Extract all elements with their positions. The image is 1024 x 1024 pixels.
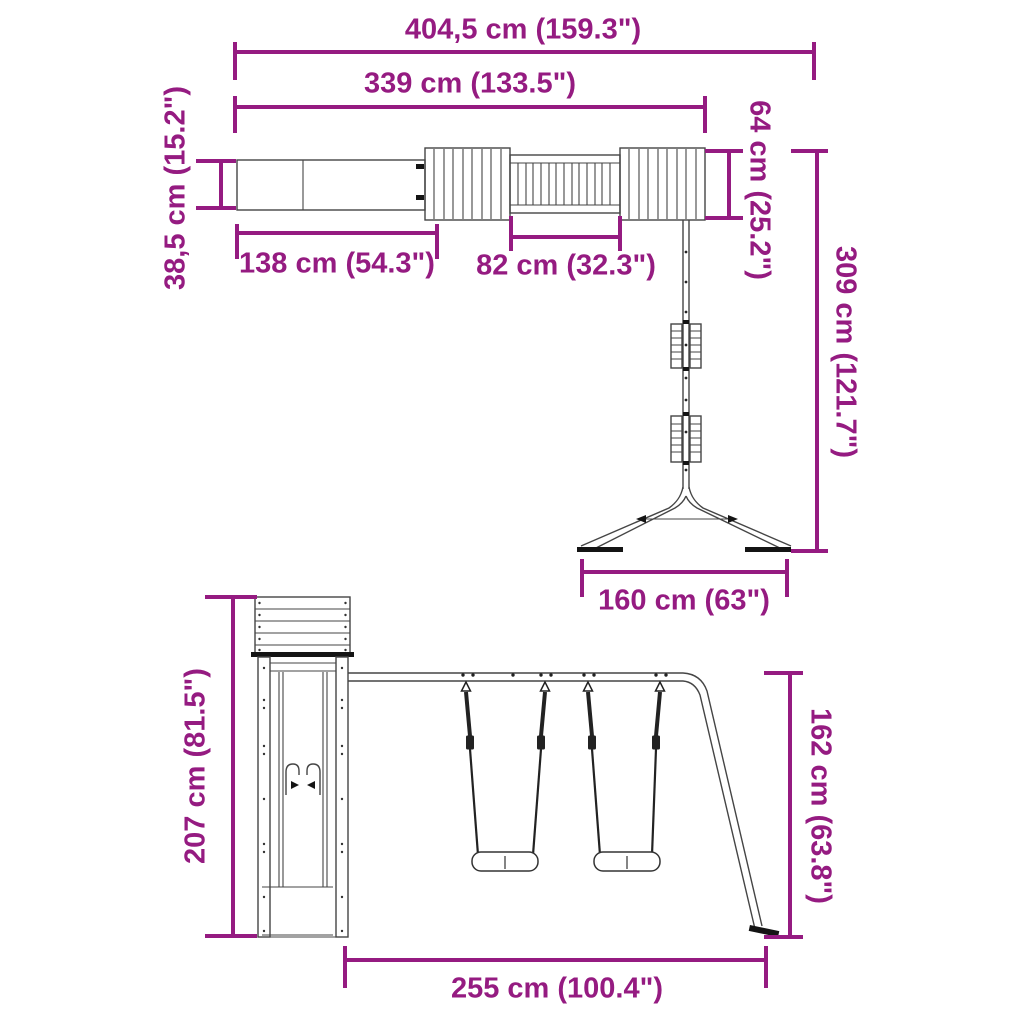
tower-body-with-slide	[258, 657, 348, 937]
support-pole	[683, 220, 689, 489]
dimension-label-base-width: 160 cm (63")	[598, 587, 770, 616]
left-beam	[237, 160, 425, 210]
swing-seat-left	[462, 682, 550, 871]
playset-line-drawing	[0, 0, 1024, 1024]
dimension-label-frame-height: 309 cm (121.7")	[831, 246, 860, 458]
a-frame-base	[577, 487, 791, 552]
tower-roof	[251, 597, 354, 657]
dimension-label-total-width: 404,5 cm (159.3")	[405, 16, 641, 45]
dimension-label-beam-span: 339 cm (133.5")	[364, 70, 576, 99]
swing-seat-right	[584, 682, 665, 871]
dimension-label-bridge-length: 82 cm (32.3")	[476, 252, 656, 281]
dimension-label-beam-thickness: 64 cm (25.2")	[745, 100, 774, 280]
swing-frame	[348, 673, 779, 937]
dimension-label-tower-height: 207 cm (81.5")	[182, 668, 211, 864]
front-view-tower-and-swings	[251, 597, 779, 937]
dimension-label-swing-frame-height: 162 cm (63.8")	[806, 708, 835, 904]
swing-hanger-straps	[671, 320, 701, 465]
top-view-beam-structure	[237, 148, 791, 552]
dimension-label-beam-depth: 38,5 cm (15.2")	[162, 86, 191, 290]
dimension-label-swing-frame-width: 255 cm (100.4")	[451, 975, 663, 1004]
dimension-diagram-canvas: 404,5 cm (159.3") 339 cm (133.5") 38,5 c…	[0, 0, 1024, 1024]
left-monkeybar-section	[425, 148, 510, 220]
top-dimension-lines	[196, 42, 828, 597]
right-monkeybar-section	[620, 148, 705, 220]
dimension-label-left-beam-length: 138 cm (54.3")	[239, 250, 435, 279]
